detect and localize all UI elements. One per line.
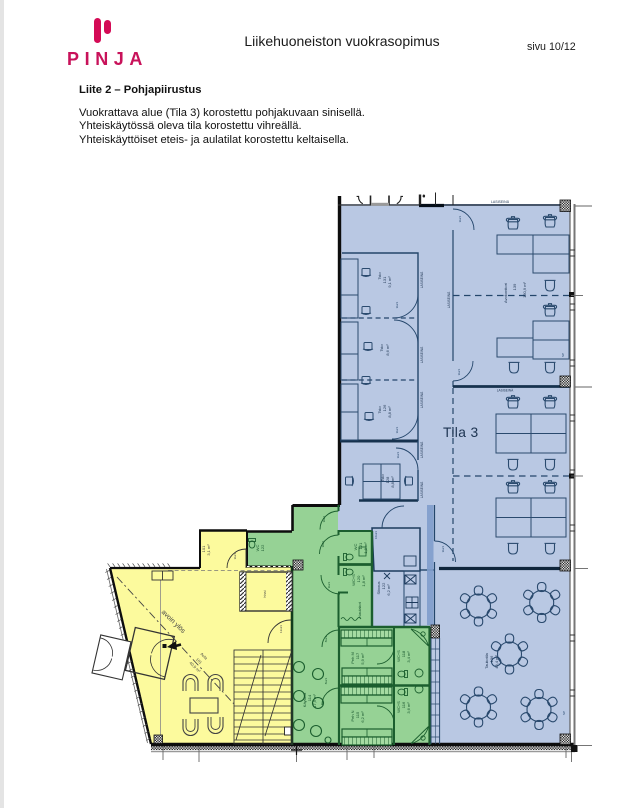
svg-text:49,4 m²: 49,4 m² [494, 655, 499, 669]
svg-text:9x21: 9x21 [395, 426, 399, 433]
svg-text:Tsto: Tsto [379, 344, 384, 352]
svg-text:3,4 m²: 3,4 m² [406, 651, 411, 663]
svg-text:9x21: 9x21 [441, 545, 445, 552]
svg-text:s: s [423, 194, 425, 198]
svg-text:9x21: 9x21 [327, 581, 331, 588]
svg-text:9x21: 9x21 [395, 301, 399, 308]
svg-text:8x21: 8x21 [324, 677, 328, 684]
svg-text:Naulakot: Naulakot [357, 601, 362, 618]
svg-text:1,8 m²: 1,8 m² [363, 542, 368, 554]
svg-text:SP: SP [561, 353, 565, 357]
svg-text:Tila 3: Tila 3 [443, 425, 479, 440]
svg-text:3,6 m²: 3,6 m² [406, 702, 411, 714]
svg-text:139: 139 [512, 283, 517, 290]
svg-text:SP: SP [562, 711, 566, 715]
svg-text:10x21: 10x21 [374, 531, 378, 540]
svg-text:1,8 m²: 1,8 m² [361, 575, 366, 587]
svg-text:9,1 m²: 9,1 m² [387, 276, 392, 288]
svg-text:17,9 m²: 17,9 m² [312, 694, 317, 708]
svg-text:LASISEINÄ: LASISEINÄ [420, 441, 424, 458]
svg-text:LASISEINÄ: LASISEINÄ [420, 271, 424, 288]
svg-text:8,8 m²: 8,8 m² [390, 476, 395, 488]
svg-text:LASISEINÄ: LASISEINÄ [497, 389, 514, 393]
svg-text:12x21: 12x21 [279, 625, 283, 634]
svg-text:160,9 m²: 160,9 m² [522, 281, 527, 297]
svg-text:122: 122 [260, 544, 265, 551]
svg-text:9x21: 9x21 [322, 515, 326, 522]
svg-text:6,2 m²: 6,2 m² [360, 711, 365, 723]
svg-text:9x21: 9x21 [396, 451, 400, 458]
svg-text:Avokonttori: Avokonttori [503, 283, 508, 303]
svg-text:5,9 m²: 5,9 m² [360, 653, 365, 665]
svg-text:9x21: 9x21 [233, 552, 237, 559]
svg-text:8,8 m²: 8,8 m² [387, 406, 392, 418]
svg-text:hissi: hissi [263, 590, 267, 597]
svg-text:6,2 m²: 6,2 m² [386, 584, 391, 596]
svg-text:9x21: 9x21 [458, 215, 462, 222]
svg-text:LASISEINÄ: LASISEINÄ [420, 391, 424, 408]
svg-text:3,1 m²: 3,1 m² [206, 544, 211, 556]
svg-text:LASISEINÄ: LASISEINÄ [491, 200, 510, 204]
svg-text:8,6 m²: 8,6 m² [385, 344, 390, 356]
svg-text:9x21: 9x21 [321, 540, 325, 547]
svg-text:LASISEINÄ: LASISEINÄ [420, 481, 424, 498]
svg-text:9x21: 9x21 [457, 368, 461, 375]
svg-text:LASISEINÄ: LASISEINÄ [420, 346, 424, 363]
svg-text:8x21: 8x21 [324, 635, 328, 642]
svg-text:LASISEINÄ: LASISEINÄ [447, 291, 451, 308]
